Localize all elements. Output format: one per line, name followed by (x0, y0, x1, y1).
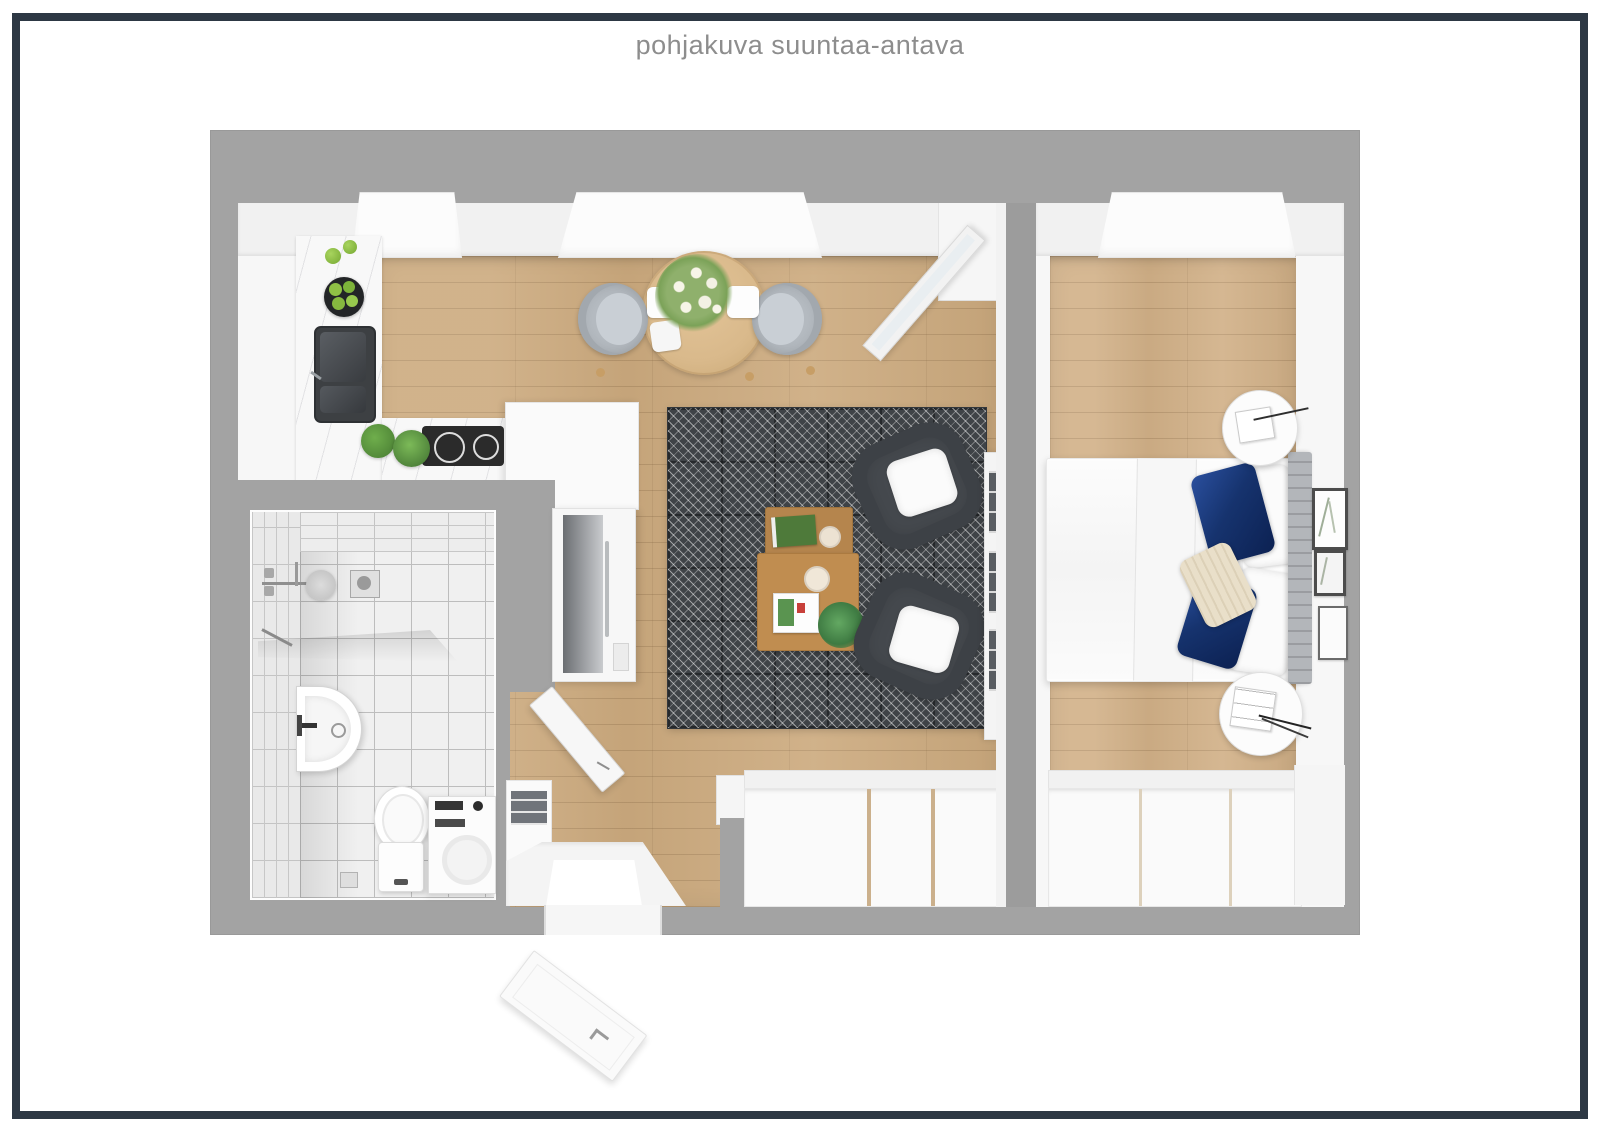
bathroom-wall-tiles-left (252, 512, 300, 898)
cooktop-burner-left (434, 432, 465, 463)
entry-door-opening (544, 905, 662, 935)
wall-art-leaf (1328, 501, 1336, 533)
apple (332, 297, 345, 310)
magazine (773, 593, 819, 633)
apple (343, 281, 355, 293)
livingroom-storage-bench (744, 788, 1004, 907)
coffee-table-large (757, 553, 859, 651)
washer-display (435, 819, 465, 827)
wall-art-leaf (1320, 557, 1328, 585)
floor-drain (340, 872, 358, 888)
livingroom-window (558, 192, 822, 258)
dining-chair-seat (596, 293, 642, 345)
shower-pipe (295, 562, 298, 586)
nightstand-top (1222, 390, 1298, 466)
floorplan-page: pohjakuva suuntaa-antava (0, 0, 1600, 1131)
apple (343, 240, 357, 254)
toilet-flush-button (394, 879, 408, 885)
kitchen-sink (314, 326, 376, 423)
sink-basin-main (320, 332, 366, 382)
wall-art-frame (1312, 488, 1348, 550)
washer-door (442, 835, 492, 885)
hallway-tall-cabinet (552, 508, 636, 682)
entry-doormat (546, 860, 642, 906)
table-leg (745, 372, 754, 381)
sink-basin-small (320, 386, 366, 413)
wall-art-frame (1318, 606, 1348, 660)
cabinet-open-panel (563, 515, 603, 673)
cooktop (422, 426, 504, 466)
bench-divider (1139, 789, 1142, 906)
wall-art-frame (1314, 550, 1346, 596)
toilet-seat (382, 794, 424, 846)
hallway-wall-chunk (493, 480, 555, 692)
divider-wall-face-living (996, 203, 1006, 907)
shower-head (306, 570, 336, 600)
magazine-cover-accent (797, 603, 805, 613)
bathroom-interior (252, 512, 494, 898)
stub-wall (720, 818, 746, 907)
washer-knob (473, 801, 483, 811)
page-title: pohjakuva suuntaa-antava (0, 30, 1600, 61)
coffee-table-small (765, 507, 853, 557)
shower-mixer-knob (264, 568, 274, 578)
bathroom-wall-tiles-top (300, 512, 494, 552)
dining-chair-left (578, 283, 648, 355)
apple (346, 295, 358, 307)
bench-divider (931, 789, 935, 906)
washing-machine (428, 796, 496, 894)
book (771, 515, 817, 548)
dining-chair-seat (758, 293, 804, 345)
herb-plant (393, 430, 430, 467)
fruit-bowl (324, 277, 364, 317)
apple (329, 283, 342, 296)
bedroom-storage-bench (1048, 788, 1302, 907)
bench-divider (1229, 789, 1232, 906)
flower-bouquet (655, 254, 741, 340)
toilet-cistern (378, 842, 424, 892)
bedroom-corner-column (1294, 765, 1345, 905)
sink-drain (331, 723, 346, 738)
bench-divider (867, 789, 871, 906)
shower-valve (357, 576, 371, 590)
cabinet-controls (613, 643, 629, 671)
candle (819, 526, 841, 548)
door-handle (597, 761, 610, 770)
book (1235, 406, 1276, 443)
shower-mixer-knob (264, 586, 274, 596)
shower-valve-plate (350, 570, 380, 598)
notebook (1229, 686, 1276, 731)
chair-leg (596, 368, 605, 377)
divider-wall (1006, 203, 1036, 907)
washer-detergent-drawer (435, 801, 463, 810)
magazine-cover-art (778, 599, 794, 626)
cabinet-handle (605, 541, 609, 637)
cooktop-burner-right (473, 434, 499, 460)
apple (325, 248, 341, 264)
cabinet-niche (511, 791, 547, 825)
chair-leg (806, 366, 815, 375)
sink-faucet-handle (297, 715, 302, 736)
herb-plant (361, 424, 395, 458)
headboard (1288, 452, 1312, 684)
bedroom-window (1098, 192, 1296, 258)
nightstand-bottom (1219, 672, 1303, 756)
dining-chair-right (752, 283, 822, 355)
candle (804, 566, 830, 592)
